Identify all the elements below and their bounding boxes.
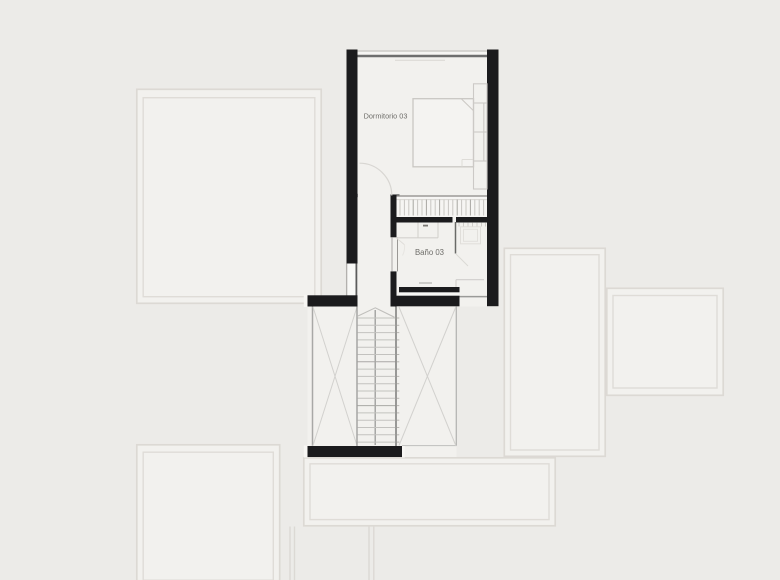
svg-text:Baño 03: Baño 03 — [415, 248, 444, 257]
svg-text:Dormitorio 03: Dormitorio 03 — [364, 112, 408, 121]
